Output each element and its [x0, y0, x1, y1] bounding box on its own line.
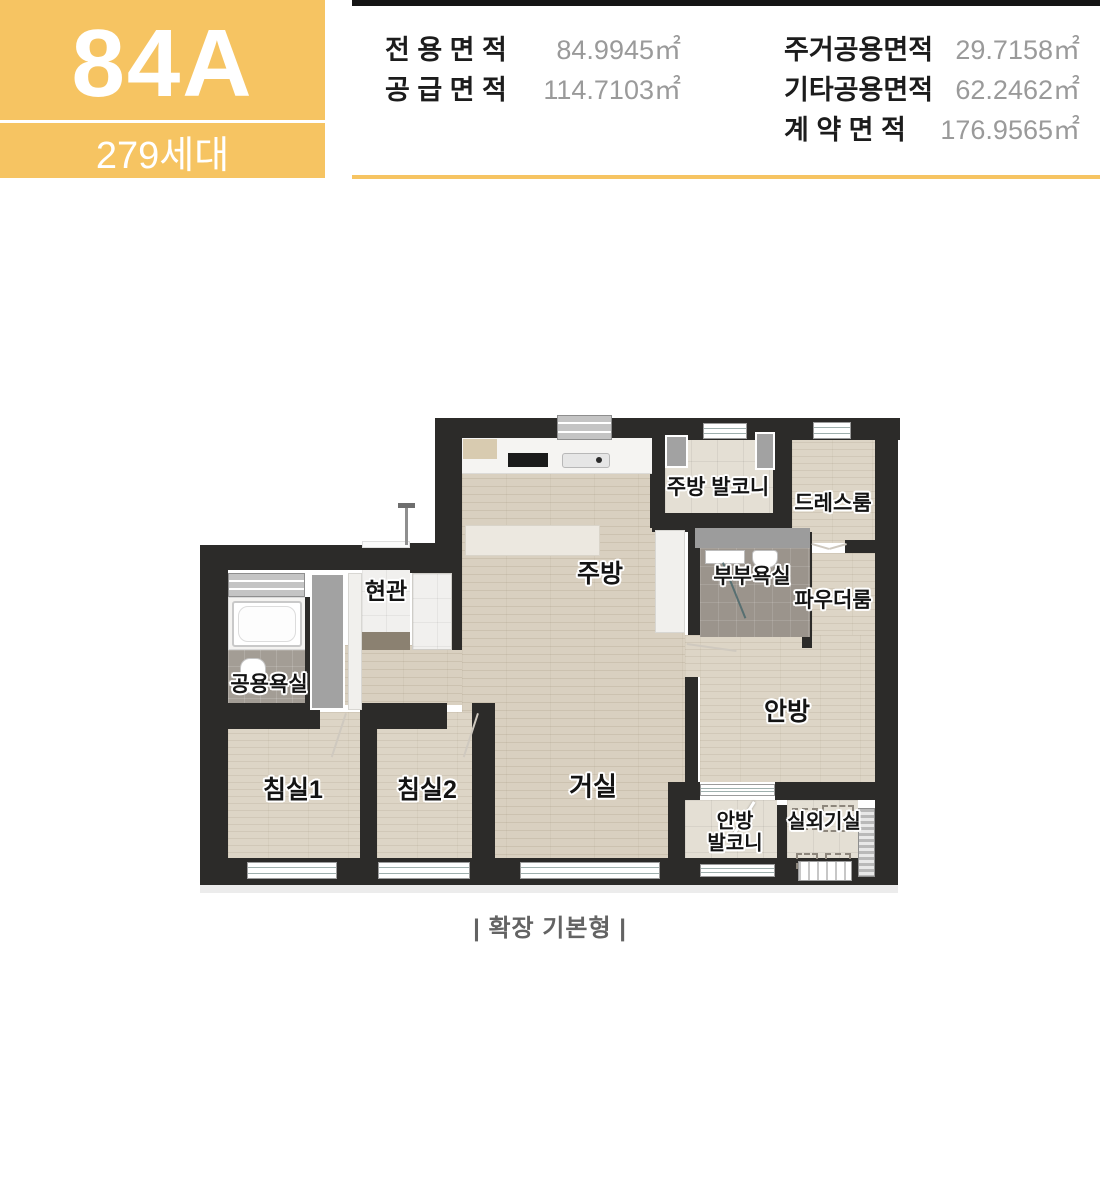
- area-row-contract: 계 약 면 적 176.9565㎡: [784, 110, 1080, 150]
- area-table: 전 용 면 적 84.9945㎡ 공 급 면 적 114.7103㎡ 주거공용면…: [352, 0, 1100, 179]
- wall-shoe-closet-right: [452, 573, 462, 650]
- unit-type-title: 84A: [0, 8, 325, 120]
- area-table-right-column: 주거공용면적 29.7158㎡ 기타공용면적 62.2462㎡ 계 약 면 적 …: [784, 30, 1080, 150]
- page: 84A 279세대 전 용 면 적 84.9945㎡ 공 급 면 적 114.7…: [0, 0, 1100, 1200]
- area-label: 계 약 면 적: [784, 110, 906, 150]
- living-room-window: [520, 862, 660, 879]
- kitchen-cabinet: [463, 439, 497, 459]
- bedroom1-window: [247, 862, 337, 879]
- bathtub-inner: [238, 606, 296, 642]
- common-bath-window: [228, 573, 305, 597]
- wall-leftwing-top: [200, 545, 435, 570]
- entrance-threshold: [362, 541, 410, 548]
- floor-master-doorway: [685, 635, 700, 677]
- area-row-supply: 공 급 면 적 114.7103㎡: [385, 70, 681, 110]
- entrance-door-marker: [398, 503, 415, 508]
- room-label-master-bedroom: 안방: [764, 698, 810, 726]
- room-label-common-bath: 공용욕실: [230, 673, 307, 697]
- powder-room-door-line-a: [811, 543, 829, 550]
- area-value: 114.7103㎡: [507, 70, 681, 110]
- floor-plan: 주방 발코니 드레스룸 현관 주방 부부욕실 파우더룸 공용욕실 안방 침실1 …: [200, 415, 900, 895]
- room-label-outdoor-unit-room: 실외기실: [787, 811, 861, 833]
- entrance-cabinet: [348, 573, 362, 710]
- cooktop: [508, 453, 548, 467]
- entrance-door-stem: [405, 507, 408, 545]
- area-value: 84.9945㎡: [507, 30, 681, 70]
- master-bedroom-balcony-door-window: [700, 784, 775, 796]
- wall-bedroom2-living: [472, 703, 495, 879]
- dress-room-window: [813, 422, 851, 439]
- room-label-bedroom2: 침실2: [397, 776, 457, 804]
- wall-entrance-right: [410, 543, 462, 573]
- room-label-master-bath: 부부욕실: [713, 565, 790, 589]
- kitchen-balcony-cabinet-right: [755, 432, 775, 470]
- plan-ground-shadow: [200, 885, 898, 893]
- area-label: 주거공용면적: [784, 30, 933, 70]
- room-label-kitchen: 주방: [577, 560, 623, 588]
- unit-type-badge: 84A 279세대: [0, 0, 325, 178]
- room-label-dress-room: 드레스룸: [794, 492, 871, 516]
- sink-drain: [596, 457, 602, 463]
- wall-living-master: [685, 677, 698, 782]
- wall-dress-powder-divider: [845, 540, 875, 553]
- area-table-left-column: 전 용 면 적 84.9945㎡ 공 급 면 적 114.7103㎡: [385, 30, 681, 110]
- shoe-closet: [412, 573, 452, 650]
- room-label-kitchen-balcony: 주방 발코니: [667, 476, 769, 500]
- area-value: 62.2462㎡: [933, 70, 1080, 110]
- kitchen-sink: [562, 453, 610, 468]
- outdoor-room-window: [798, 861, 852, 881]
- kitchen-balcony-cabinet-left: [665, 435, 688, 468]
- kitchen-hood-window: [557, 415, 612, 440]
- wall-bedroom-divider: [360, 703, 377, 879]
- room-label-living-room: 거실: [569, 772, 617, 801]
- master-bath-sink: [705, 550, 745, 564]
- wall-kitchen-balcony-left: [650, 418, 665, 528]
- wall-master-balcony-left: [668, 782, 685, 885]
- area-value: 29.7158㎡: [933, 30, 1080, 70]
- household-count: 279세대: [0, 124, 325, 178]
- refrigerator-cabinet: [655, 530, 685, 633]
- plan-caption: | 확장 기본형 |: [0, 908, 1100, 943]
- area-label: 공 급 면 적: [385, 70, 507, 110]
- entrance-mat: [362, 632, 410, 650]
- area-row-exclusive: 전 용 면 적 84.9945㎡: [385, 30, 681, 70]
- wardrobe: [310, 573, 345, 710]
- room-label-entrance: 현관: [365, 579, 407, 605]
- wall-right: [875, 418, 898, 885]
- bedroom2-window: [378, 862, 470, 879]
- master-balcony-window: [700, 864, 775, 877]
- area-row-other-common: 기타공용면적 62.2462㎡: [784, 70, 1080, 110]
- floor-dress-room: [792, 435, 875, 543]
- master-bath-shelf: [695, 528, 810, 548]
- room-label-master-balcony: 안방 발코니: [707, 811, 762, 856]
- room-label-bedroom1: 침실1: [263, 776, 323, 804]
- area-value: 176.9565㎡: [906, 110, 1080, 150]
- area-row-residential-common: 주거공용면적 29.7158㎡: [784, 30, 1080, 70]
- wall-balcony-outdoor-divider: [777, 805, 787, 877]
- area-label: 전 용 면 적: [385, 30, 507, 70]
- area-label: 기타공용면적: [784, 70, 933, 110]
- room-label-powder-room: 파우더룸: [794, 589, 871, 613]
- kitchen-island: [465, 525, 600, 556]
- kitchen-balcony-window: [703, 423, 747, 439]
- wall-master-balcony-top-right: [775, 782, 875, 800]
